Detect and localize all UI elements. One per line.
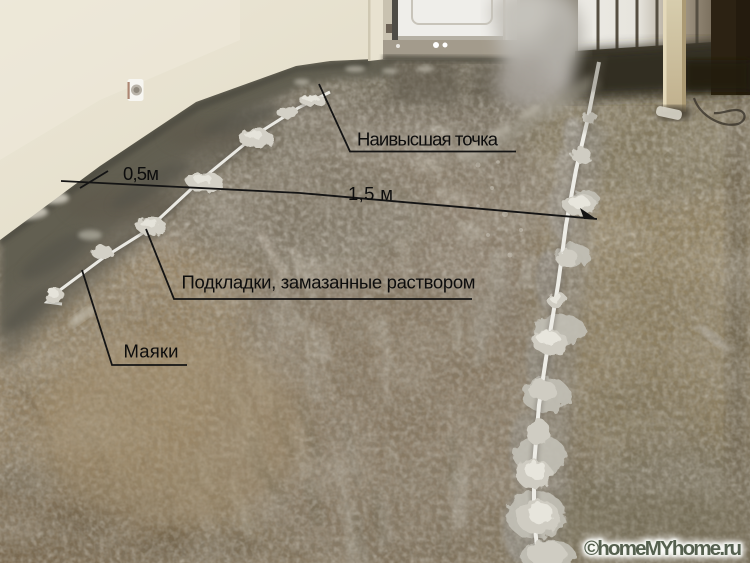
- svg-text:©homeMYhome.ru: ©homeMYhome.ru: [584, 537, 742, 560]
- svg-text:0,5м: 0,5м: [123, 163, 159, 184]
- svg-text:Наивысшая точка: Наивысшая точка: [357, 129, 499, 150]
- svg-text:Маяки: Маяки: [124, 341, 179, 362]
- svg-text:Подкладки, замазанные растворо: Подкладки, замазанные раствором: [182, 272, 476, 293]
- svg-text:1,5 м: 1,5 м: [348, 183, 393, 204]
